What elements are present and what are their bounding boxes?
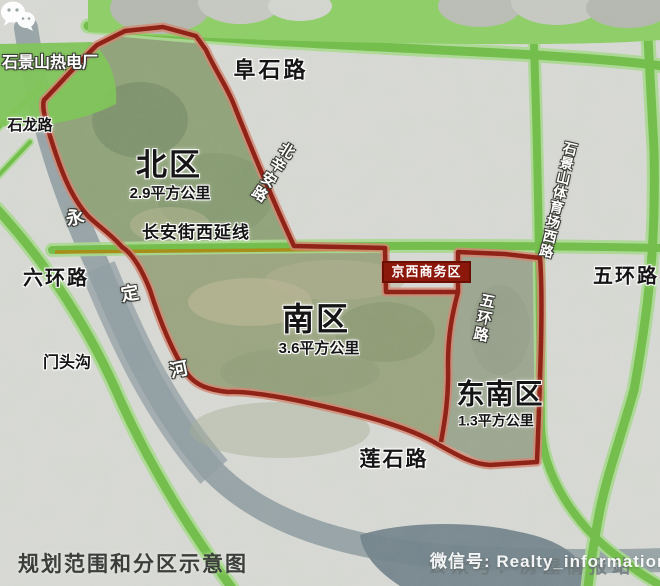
sixth-ring-road-label: 六环路 [23, 269, 89, 290]
yongding-river-char-3: 河 [168, 359, 190, 381]
changan-extension-label: 长安街西延线 [142, 224, 250, 242]
shilong-road-label: 石龙路 [7, 118, 52, 134]
jingxi-cbd-label: 京西商务区 [391, 264, 461, 279]
southeast-district-area: 1.3平方公里 [458, 414, 533, 429]
south-district-name: 南区 [282, 303, 350, 337]
map-caption: 规划范围和分区示意图 [18, 548, 248, 578]
southeast-district-name: 东南区 [456, 379, 543, 408]
wechat-icon [0, 0, 36, 32]
planning-map: 石景山热电厂 阜石路 石龙路 北区 2.9平方公里 北辛安路 石景山体育场西路 … [0, 0, 660, 586]
fifth-ring-east-label: 五环路 [593, 267, 659, 288]
yongding-river-char-2: 定 [119, 283, 140, 305]
lianshi-road-label: 莲石路 [360, 449, 429, 471]
jingxi-cbd-label-box: 京西商务区 [382, 261, 471, 283]
north-district-area: 2.9平方公里 [130, 186, 211, 202]
satellite-grain [0, 0, 660, 586]
fushi-road-label: 阜石路 [233, 58, 308, 81]
power-plant-label: 石景山热电厂 [2, 56, 98, 73]
north-district-name: 北区 [136, 150, 202, 183]
mentougou-label: 门头沟 [43, 356, 91, 373]
watermark-wechat-line: 微信号: Realty_information [430, 547, 660, 572]
map-canvas [0, 0, 660, 586]
south-district-area: 3.6平方公里 [279, 341, 360, 357]
